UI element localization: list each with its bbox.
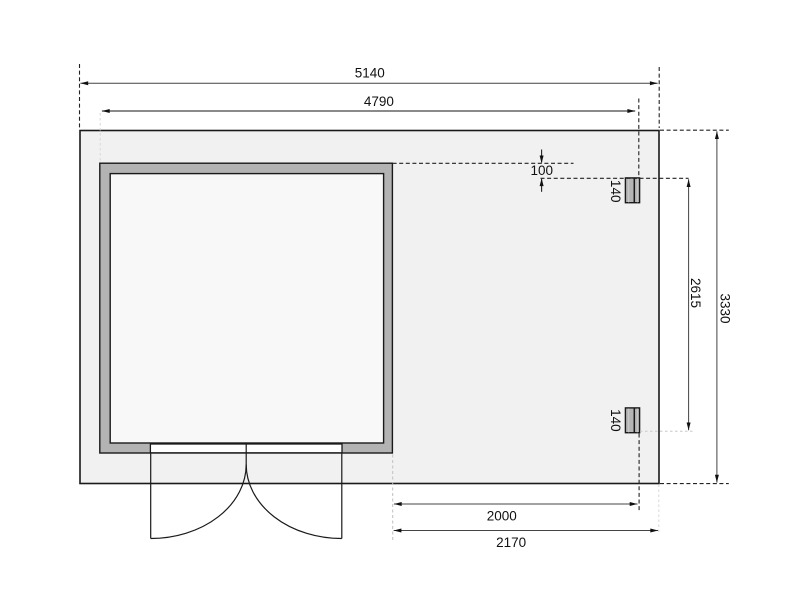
svg-text:4790: 4790	[364, 94, 394, 109]
svg-text:100: 100	[531, 163, 554, 178]
svg-text:2170: 2170	[496, 535, 526, 550]
svg-text:3330: 3330	[718, 293, 733, 323]
svg-text:2615: 2615	[688, 278, 703, 308]
svg-text:140: 140	[608, 180, 623, 203]
svg-text:2000: 2000	[487, 509, 517, 524]
svg-text:140: 140	[608, 409, 623, 432]
svg-text:5140: 5140	[355, 66, 385, 81]
